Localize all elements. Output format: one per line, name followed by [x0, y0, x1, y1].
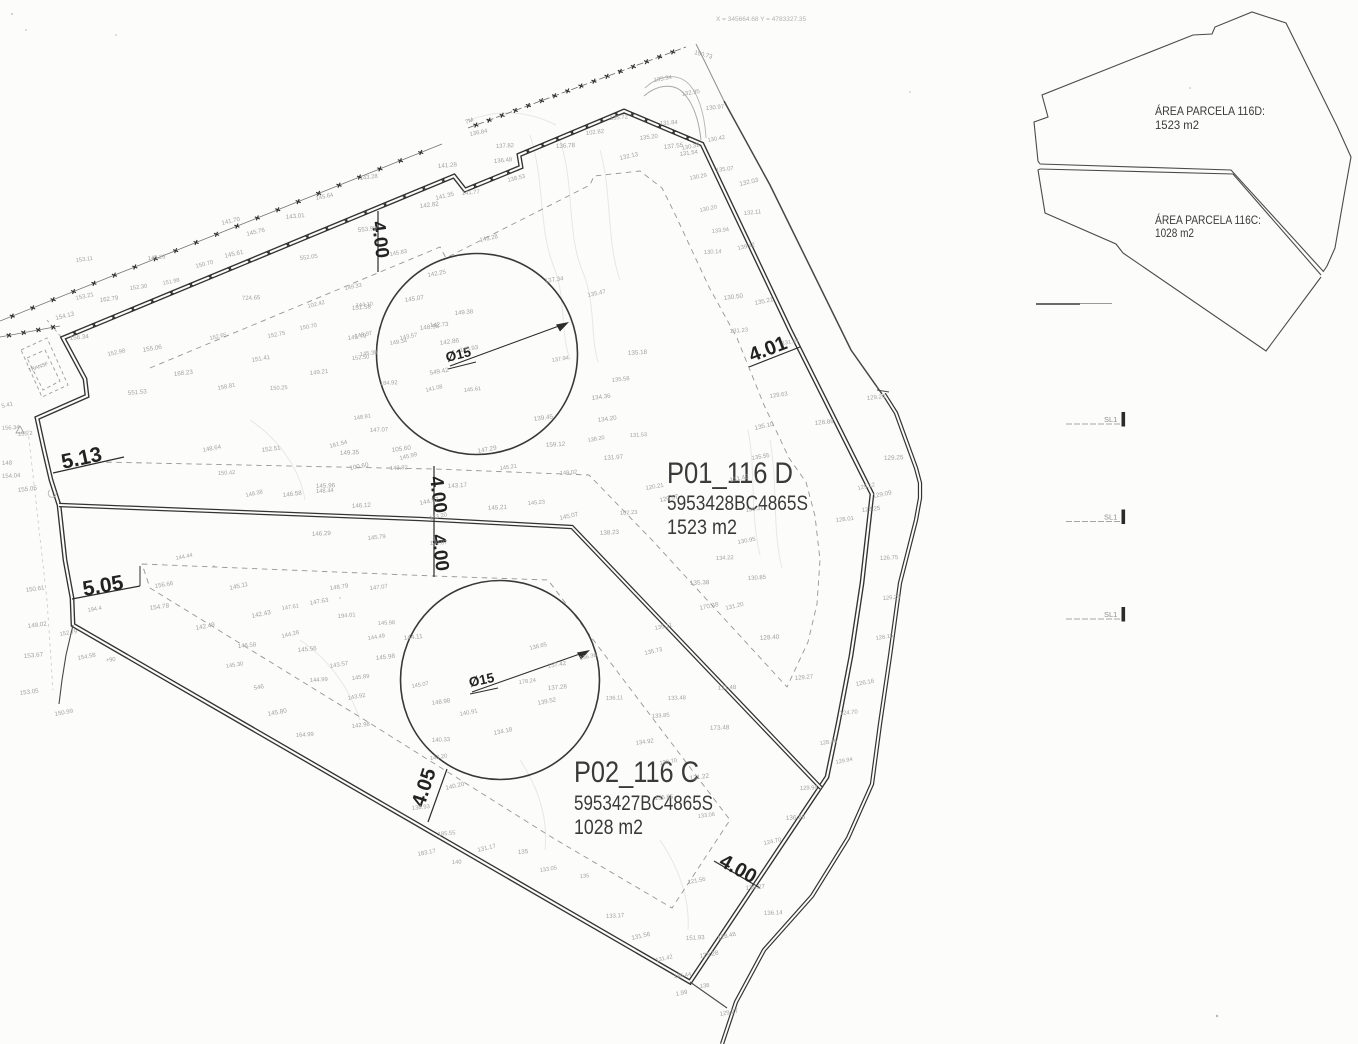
svg-text:173.48: 173.48: [710, 724, 730, 732]
svg-text:142.73: 142.73: [430, 322, 449, 329]
svg-text:126.75: 126.75: [880, 555, 899, 562]
svg-text:1523 m2: 1523 m2: [667, 516, 737, 539]
svg-text:4.00: 4.00: [425, 475, 450, 514]
svg-text:5953428BC4865S: 5953428BC4865S: [667, 492, 808, 515]
svg-text:136.78: 136.78: [556, 142, 576, 150]
svg-text:147.07: 147.07: [370, 427, 389, 434]
svg-text:ÁREA PARCELA 116C:: ÁREA PARCELA 116C:: [1155, 214, 1261, 227]
svg-text:128.40: 128.40: [760, 634, 780, 642]
svg-text:129.25: 129.25: [884, 454, 904, 462]
svg-text:143.92: 143.92: [390, 465, 408, 472]
svg-text:145.21: 145.21: [488, 504, 508, 512]
svg-text:144.99: 144.99: [310, 677, 328, 684]
svg-text:136.11: 136.11: [606, 695, 623, 702]
svg-text:1028 m2: 1028 m2: [574, 816, 643, 839]
svg-text:1523 m2: 1523 m2: [1155, 120, 1199, 132]
svg-text:135: 135: [580, 873, 590, 880]
svg-text:131.84: 131.84: [660, 120, 679, 127]
svg-text:145.98: 145.98: [378, 620, 395, 627]
svg-text:SL1: SL1: [1104, 610, 1117, 619]
svg-text:130.14: 130.14: [704, 249, 723, 256]
svg-text:151.93: 151.93: [686, 934, 706, 942]
svg-text:P02_116 C: P02_116 C: [574, 756, 699, 789]
svg-text:135: 135: [518, 848, 529, 856]
svg-text:136.14: 136.14: [764, 909, 783, 917]
svg-text:135.18: 135.18: [628, 349, 648, 357]
svg-text:146.12: 146.12: [352, 502, 372, 510]
svg-text:ÁREA PARCELA 116D:: ÁREA PARCELA 116D:: [1155, 105, 1265, 118]
svg-text:155.2: 155.2: [18, 431, 34, 438]
svg-text:131.53: 131.53: [630, 432, 647, 439]
svg-text:140.33: 140.33: [432, 737, 451, 744]
svg-text:+90: +90: [106, 657, 116, 664]
svg-text:145.96: 145.96: [316, 482, 336, 490]
svg-text:5953427BC4865S: 5953427BC4865S: [574, 792, 713, 815]
svg-text:4.00: 4.00: [427, 533, 452, 572]
svg-text:SL1: SL1: [1104, 513, 1117, 522]
svg-text:140.07: 140.07: [430, 540, 448, 547]
svg-text:138.23: 138.23: [600, 529, 620, 537]
svg-text:146.29: 146.29: [312, 530, 332, 538]
svg-text:137.82: 137.82: [496, 143, 514, 150]
svg-text:131.97: 131.97: [604, 454, 624, 462]
svg-text:133.17: 133.17: [606, 913, 625, 920]
svg-text:1028 m2: 1028 m2: [1155, 228, 1194, 240]
svg-text:724.65: 724.65: [242, 295, 261, 302]
svg-text:143.17: 143.17: [448, 482, 468, 490]
svg-text:131.48: 131.48: [718, 685, 737, 692]
svg-text:SL1: SL1: [1104, 415, 1117, 424]
svg-text:129.94: 129.94: [800, 785, 819, 792]
svg-text:130.85: 130.85: [748, 575, 767, 582]
svg-text:138: 138: [700, 983, 710, 990]
svg-text:149.35: 149.35: [340, 449, 360, 457]
svg-text:184.92: 184.92: [380, 380, 398, 387]
svg-text:156.34: 156.34: [2, 425, 21, 432]
svg-text:159.12: 159.12: [546, 441, 566, 449]
svg-text:134.22: 134.22: [716, 555, 734, 562]
svg-text:150.42: 150.42: [218, 470, 236, 477]
svg-text:136.26: 136.26: [786, 814, 806, 822]
svg-text:135.38: 135.38: [690, 579, 710, 587]
svg-text:148: 148: [2, 460, 13, 467]
svg-text:X = 345664.68 Y = 4783327.35: X = 345664.68 Y = 4783327.35: [716, 16, 807, 23]
svg-text:P01_116 D: P01_116 D: [667, 457, 793, 490]
svg-text:140: 140: [452, 860, 462, 866]
svg-text:154.04: 154.04: [2, 473, 21, 480]
svg-text:150.25: 150.25: [270, 385, 288, 392]
svg-text:133.48: 133.48: [668, 695, 687, 702]
svg-text:164.99: 164.99: [296, 732, 314, 739]
